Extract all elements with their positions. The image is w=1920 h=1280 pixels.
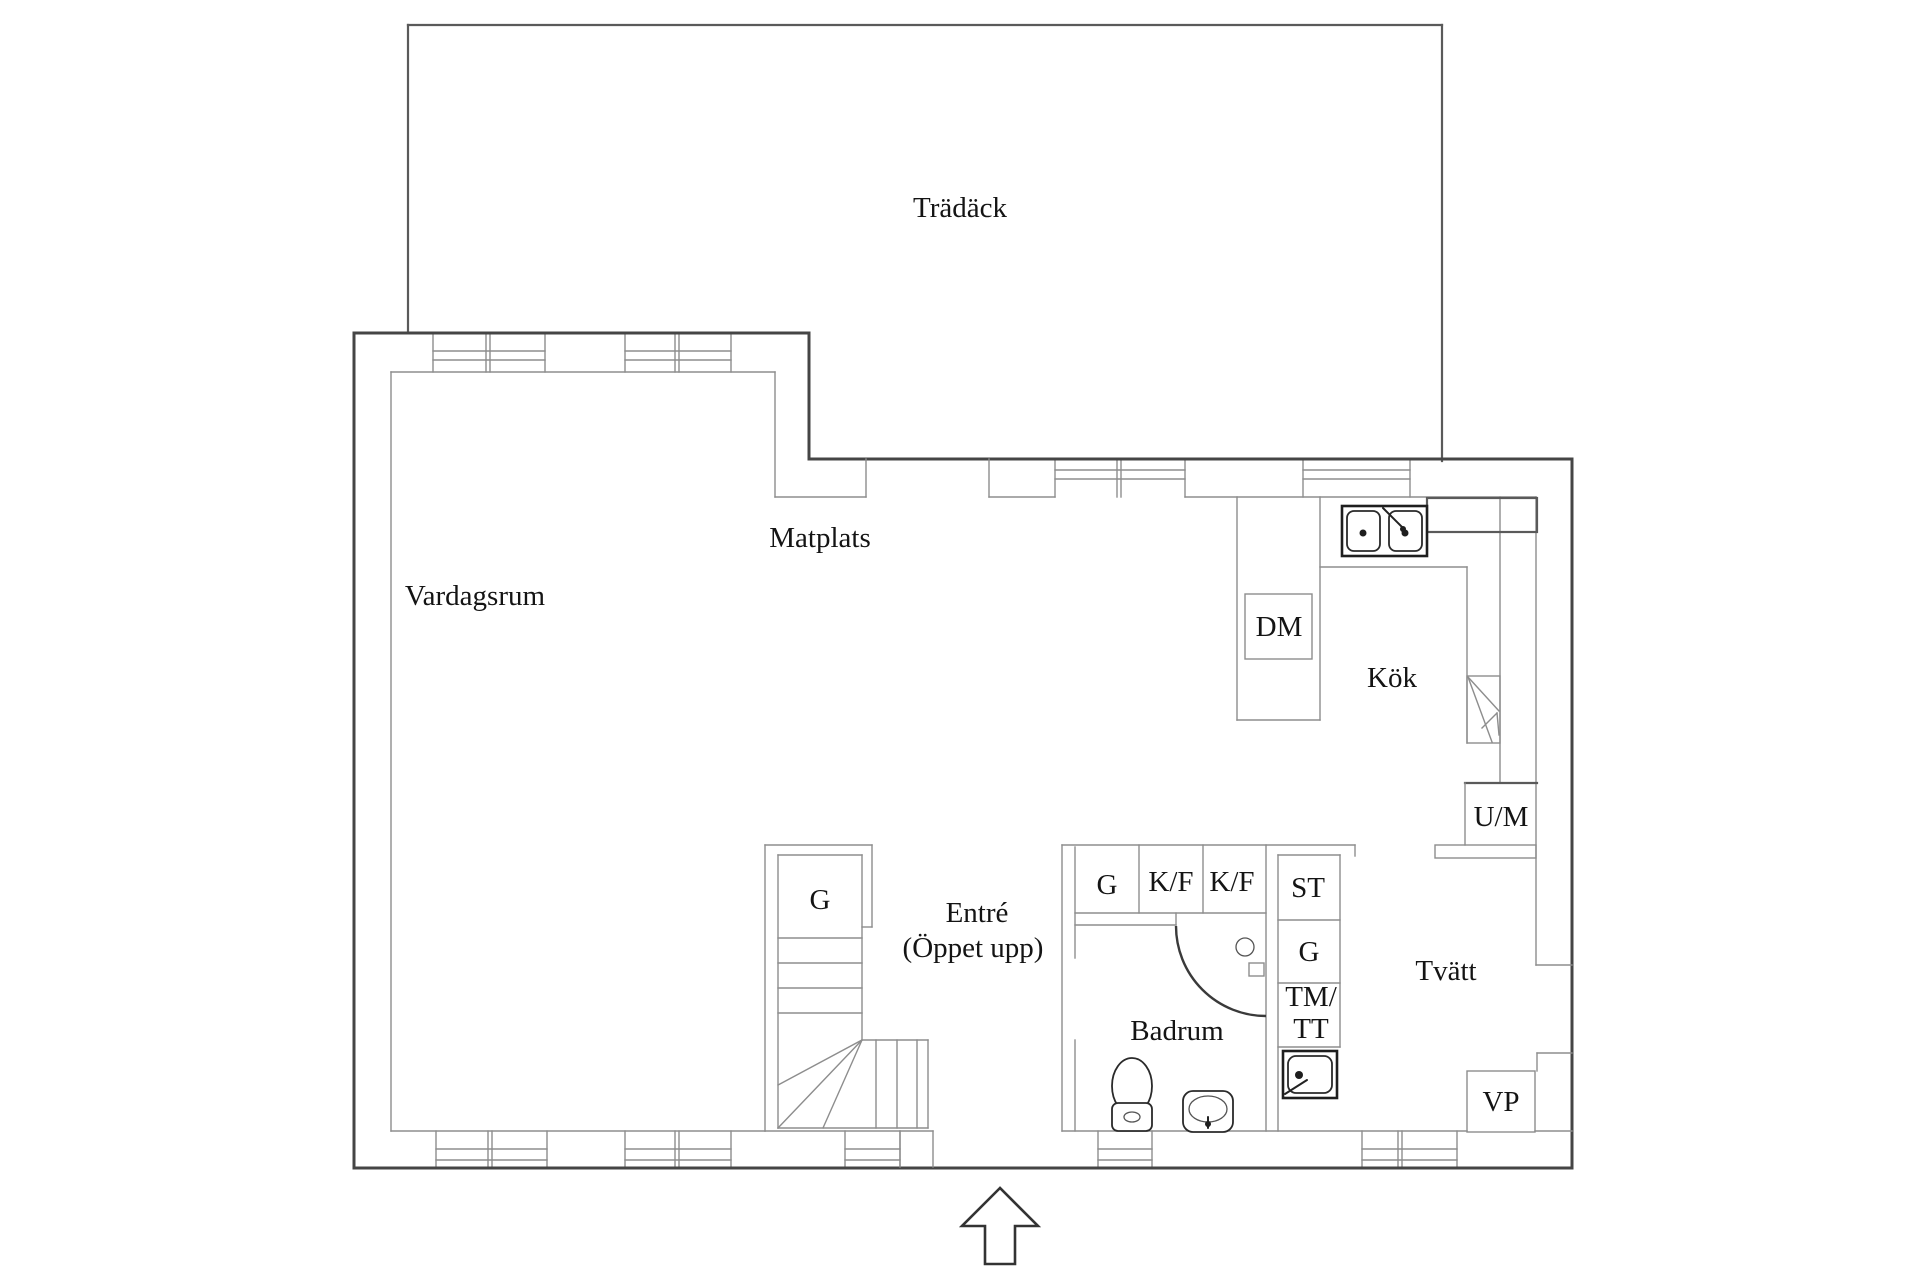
stove-diag-1 [1468,677,1499,711]
badrum-wall-fixture [1249,963,1264,976]
room-label-tvatt: Tvätt [1415,955,1476,987]
unit-label-tt: TT [1293,1013,1329,1045]
stair-winder-2 [778,1040,862,1128]
badrum-wall-circle [1236,938,1254,956]
room-label-vardagsrum: Vardagsrum [405,580,546,612]
basin-faucet-dot [1205,1121,1211,1127]
unit-label-kf-1: K/F [1148,866,1193,898]
laundry-sink-drain [1295,1071,1303,1079]
kitchen-sink-faucet-base [1400,526,1406,532]
room-label-matplats: Matplats [769,522,871,554]
entrance-arrow [962,1188,1038,1264]
unit-label-st: ST [1291,872,1325,904]
unit-label-kf-2: K/F [1209,866,1254,898]
toilet-base [1112,1103,1152,1131]
unit-label-g-stair: G [810,884,831,916]
floorplan-page: TrädäckVardagsrumMatplatsKökEntré(Öppet … [0,0,1920,1280]
stove-diag-4 [1497,713,1499,735]
unit-label-g-row: G [1097,869,1118,901]
counter-by-sink [1427,498,1537,532]
unit-label-tm: TM/ [1285,981,1338,1013]
floorplan-svg: TrädäckVardagsrumMatplatsKökEntré(Öppet … [0,0,1920,1280]
room-label-oppet-upp: (Öppet upp) [903,932,1044,964]
unit-label-vp: VP [1482,1086,1519,1118]
shelf-bar [1435,845,1536,858]
unit-label-dm: DM [1256,611,1303,643]
badrum-door-arc [1176,926,1266,1016]
room-label-kok: Kök [1367,662,1417,694]
room-label-entre: Entré [946,897,1009,929]
stair-winder-1 [778,1040,862,1085]
kitchen-sink-drain-left [1360,530,1367,537]
room-label-badrum: Badrum [1130,1015,1224,1047]
unit-label-um: U/M [1474,801,1529,833]
unit-label-g-column: G [1299,936,1320,968]
room-label-tradack: Trädäck [913,192,1007,224]
stair-winder-3 [823,1040,862,1128]
stove-diag-2 [1468,677,1492,742]
